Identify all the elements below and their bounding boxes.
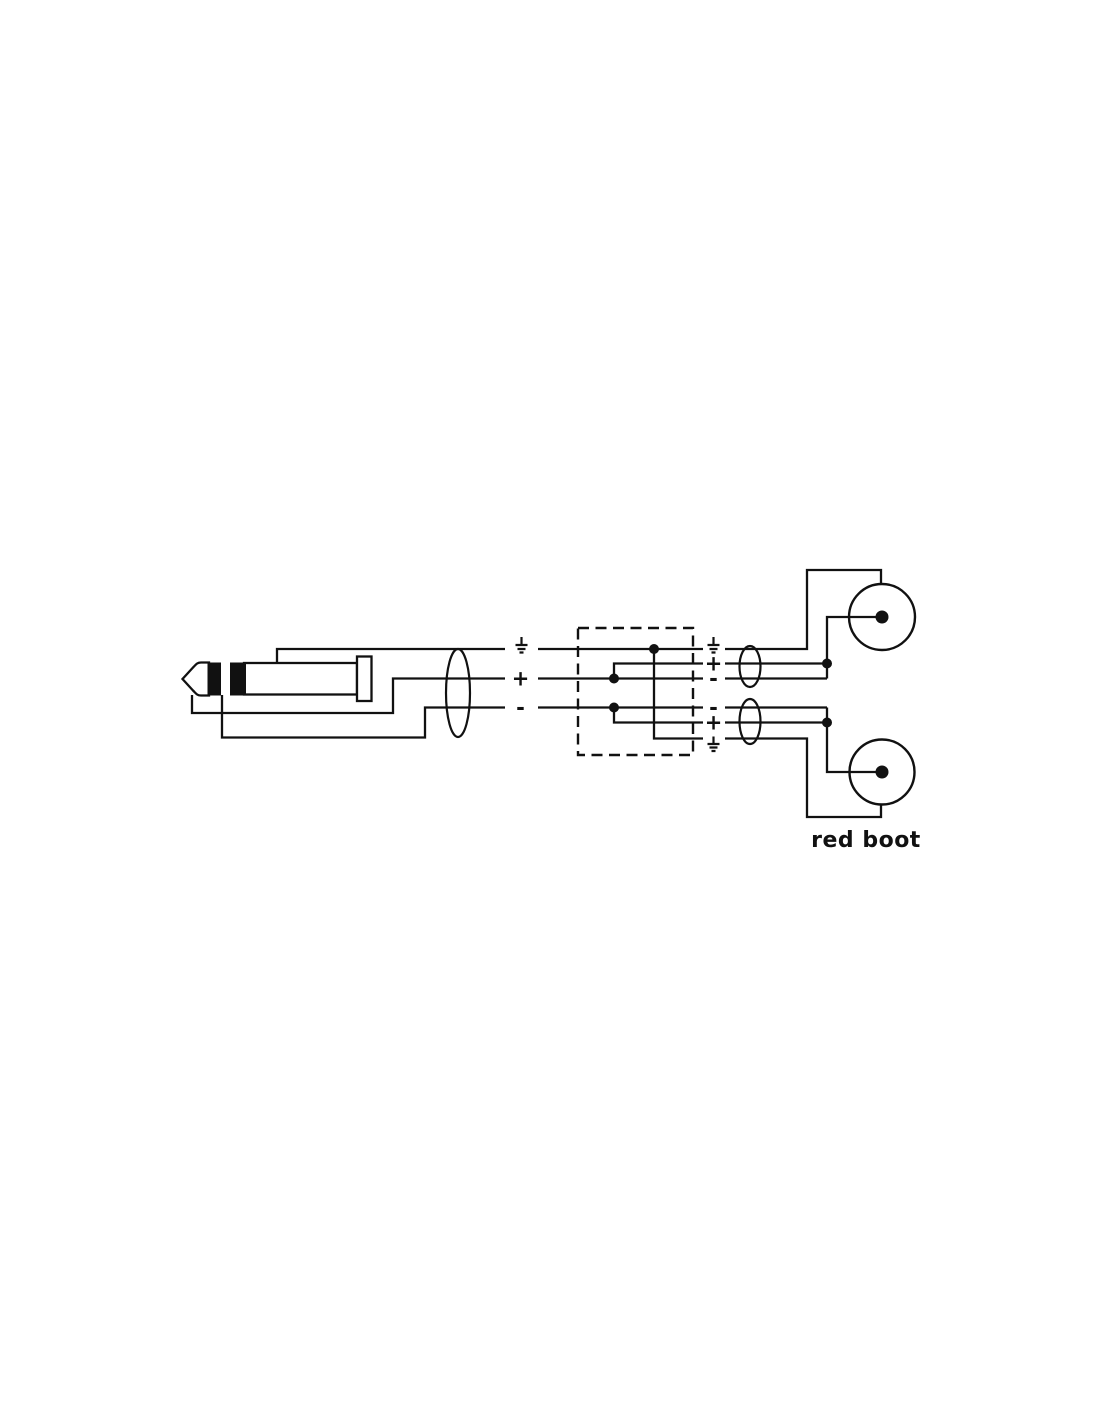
minus-branch-in-box: [614, 708, 703, 723]
minus-symbol-left: -: [516, 696, 525, 720]
ground-wire-from-sleeve: [277, 649, 505, 663]
minus-net: [222, 695, 882, 772]
jack-barrel: [244, 663, 357, 695]
wiring-diagram-page: + - + - - + red boot: [0, 0, 1100, 1422]
cable-ellipse-top-right: [740, 646, 761, 687]
ground-wire-to-top-rca-shell: [725, 570, 881, 649]
minus-symbol-top-rca: -: [709, 667, 718, 691]
jack-insulator-band-2: [230, 663, 246, 696]
diagram-artwork: [183, 570, 916, 817]
red-boot-label: red boot: [811, 828, 921, 853]
junction-dot: [609, 703, 619, 713]
rca-pin-bottom: [876, 766, 889, 779]
junction-dot: [649, 644, 659, 654]
jack-collar: [357, 657, 372, 702]
plus-branch-in-box: [614, 664, 703, 679]
jack-insulator-band-1: [208, 663, 222, 696]
trs-jack-plug: [183, 657, 372, 702]
earth-ground-icon-top-right: [708, 637, 720, 653]
plus-symbol-bottom-rca: +: [705, 711, 723, 735]
junction-dot: [609, 674, 619, 684]
earth-ground-icon-bottom-right: [708, 737, 720, 752]
junction-dot: [822, 659, 832, 669]
junction-box: [578, 628, 693, 755]
cable-ellipse-left: [446, 649, 470, 737]
plus-symbol-left: +: [512, 667, 530, 691]
rca-pin-top: [876, 611, 889, 624]
jack-tip: [183, 663, 210, 696]
junction-dot: [822, 718, 832, 728]
wiring-diagram: + - + - - + red boot: [0, 0, 1100, 1422]
earth-ground-icon-left: [516, 637, 528, 653]
